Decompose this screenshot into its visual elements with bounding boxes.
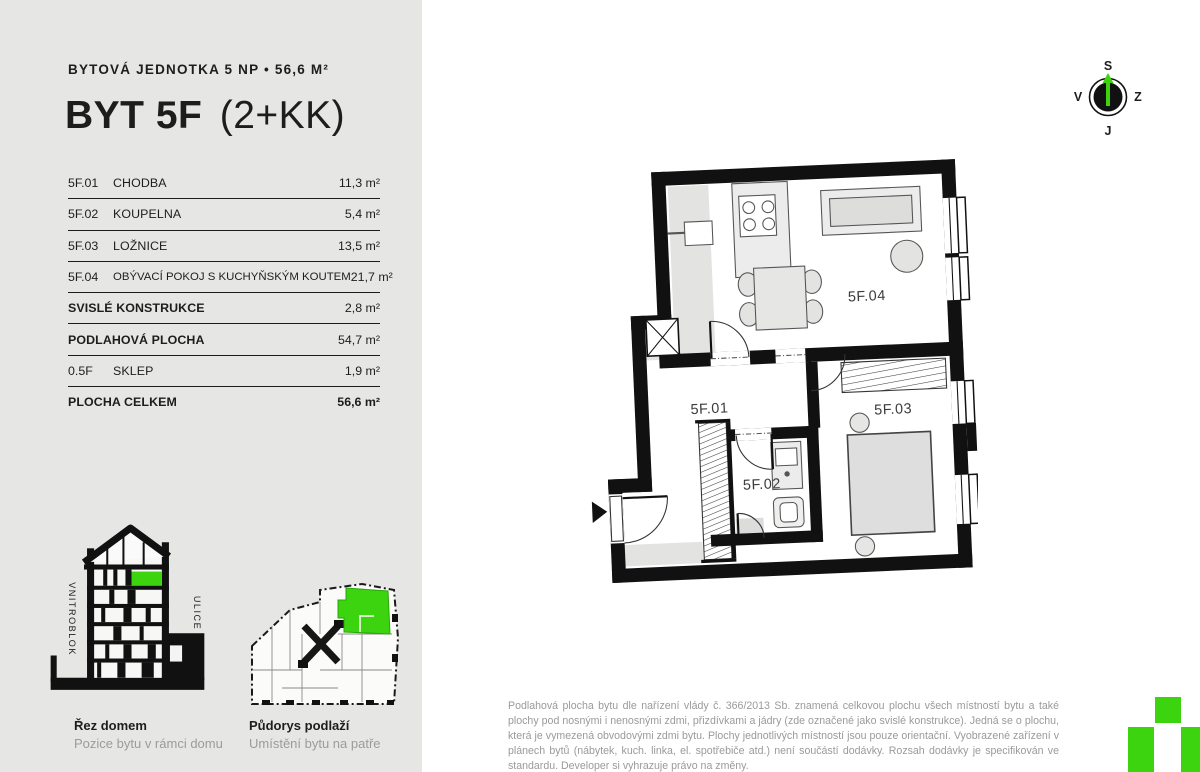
compass: S V Z J (1068, 50, 1148, 142)
roof (84, 528, 169, 562)
room-area: 13,5 m² (338, 239, 380, 253)
legal-disclaimer: Podlahová plocha bytu dle nařízení vlády… (508, 699, 1059, 772)
table-row: 5F.04 OBÝVACÍ POKOJ S KUCHYŇSKÝM KOUTEM … (68, 262, 380, 293)
table-row: 5F.02 KOUPELNA 5,4 m² (68, 199, 380, 230)
courtyard-label: VNITROBLOK (67, 582, 77, 656)
highlighted-unit-on-floor (338, 588, 390, 634)
room-label-5f01: 5F.01 (690, 400, 729, 418)
floor-key-caption-title: Půdorys podlaží (249, 717, 381, 735)
table-row: 5F.03 LOŽNICE 13,5 m² (68, 231, 380, 262)
room-code: 5F.04 (68, 270, 113, 284)
floor-key-caption-subtitle: Umístění bytu na patře (249, 735, 381, 753)
room-area: 5,4 m² (345, 207, 380, 221)
table-row: SVISLÉ KONSTRUKCE 2,8 m² (68, 293, 380, 324)
dining-table (738, 265, 824, 330)
unit-name: BYT 5F (65, 94, 202, 137)
highlighted-unit (132, 572, 162, 586)
compass-south-label: J (1105, 124, 1112, 138)
summary-label: PODLAHOVÁ PLOCHA (68, 333, 338, 347)
total-label: PLOCHA CELKEM (68, 395, 337, 409)
room-name: SKLEP (113, 364, 345, 378)
section-caption-title: Řez domem (74, 717, 223, 735)
summary-label: SVISLÉ KONSTRUKCE (68, 301, 345, 315)
summary-area: 2,8 m² (345, 301, 380, 315)
room-area-table: 5F.01 CHODBA 11,3 m² 5F.02 KOUPELNA 5,4 … (68, 168, 380, 417)
room-code: 0.5F (68, 364, 113, 378)
building-section-diagram: VNITROBLOK ULICE (50, 520, 208, 702)
table-row: 0.5F SKLEP 1,9 m² (68, 356, 380, 387)
compass-left-label: V (1074, 90, 1083, 104)
room-name: CHODBA (113, 176, 339, 190)
floorplan-sheet: BYTOVÁ JEDNOTKA 5 NP • 56,6 M² BYT 5F (2… (0, 0, 1200, 772)
total-area: 56,6 m² (337, 395, 380, 409)
room-label-5f02: 5F.02 (743, 476, 782, 494)
street-label: ULICE (192, 596, 202, 630)
room-code: 5F.01 (68, 176, 113, 190)
unit-layout-type: (2+KK) (220, 94, 345, 137)
room-name: KOUPELNA (113, 207, 345, 221)
bed (847, 431, 934, 535)
ventilation-shaft-icon (646, 319, 680, 357)
toilet (773, 497, 804, 528)
room-code: 5F.02 (68, 207, 113, 221)
floor-key-diagram (242, 574, 407, 716)
unit-subtitle: BYTOVÁ JEDNOTKA 5 NP • 56,6 M² (68, 62, 329, 77)
section-caption-subtitle: Pozice bytu v rámci domu (74, 735, 223, 753)
room-area: 1,9 m² (345, 364, 380, 378)
room-name: LOŽNICE (113, 239, 338, 253)
bedside-table (850, 413, 870, 433)
round-table (890, 240, 923, 273)
bedside-table (855, 536, 875, 556)
table-row: PODLAHOVÁ PLOCHA 54,7 m² (68, 324, 380, 355)
compass-right-label: Z (1134, 90, 1142, 104)
entrance-arrow-icon (592, 501, 608, 523)
room-code: 5F.03 (68, 239, 113, 253)
wall-unit (684, 221, 713, 246)
table-row-total: PLOCHA CELKEM 56,6 m² (68, 387, 380, 417)
room-area: 11,3 m² (339, 176, 380, 190)
summary-area: 54,7 m² (338, 333, 380, 347)
room-area: 21,7 m² (351, 270, 393, 284)
page-title: BYT 5F (2+KK) (65, 94, 345, 138)
sofa (821, 186, 922, 235)
room-label-5f03: 5F.03 (874, 401, 913, 419)
section-caption: Řez domem Pozice bytu v rámci domu (74, 717, 223, 753)
stove (739, 195, 777, 237)
compass-north-label: S (1104, 59, 1112, 73)
room-label-5f04: 5F.04 (848, 288, 887, 306)
wardrobe-bedroom (841, 358, 947, 392)
floor-key-caption: Půdorys podlaží Umístění bytu na patře (249, 717, 381, 753)
room-name: OBÝVACÍ POKOJ S KUCHYŇSKÝM KOUTEM (113, 271, 351, 283)
main-floor-plan: 5F.01 5F.02 5F.03 5F.04 (578, 156, 978, 583)
table-row: 5F.01 CHODBA 11,3 m² (68, 168, 380, 199)
